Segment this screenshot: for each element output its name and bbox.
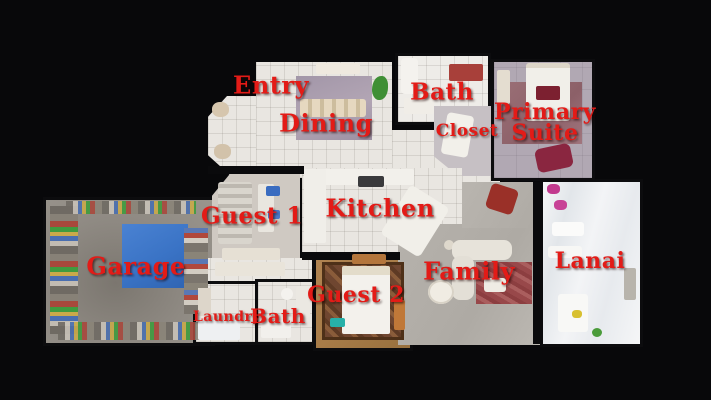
entry-chair <box>214 144 231 159</box>
room-label-kitchen: Kitchen <box>325 194 434 223</box>
garage-shelving <box>50 206 78 334</box>
floorplan-canvas: Entry Dining Bath Closet Primary Suite G… <box>0 0 711 400</box>
room-label-guest-1: Guest 1 <box>201 203 303 230</box>
room-label-family: Family <box>423 257 515 286</box>
garage-shelving <box>66 201 196 214</box>
guest2-dresser <box>352 254 386 264</box>
planter <box>624 268 636 300</box>
kitchen-counter <box>304 169 326 243</box>
room-label-dining: Dining <box>279 109 373 138</box>
pink-cushion <box>554 200 567 210</box>
room-label-garage: Garage <box>86 252 185 281</box>
garage-shelving <box>58 322 200 340</box>
room-label-guest-2: Guest 2 <box>307 282 405 308</box>
guest2-teal-item <box>330 318 345 327</box>
pink-cushion <box>547 184 560 194</box>
yellow-item <box>572 310 582 318</box>
wall-segment <box>533 182 543 344</box>
entry-chair <box>212 102 229 117</box>
red-throw-pillow <box>536 86 560 100</box>
potted-plant <box>592 328 602 337</box>
wall-segment <box>208 166 304 174</box>
hall-cabinet <box>215 262 285 276</box>
lounge-chair <box>552 222 584 236</box>
guest1-dresser <box>222 248 280 260</box>
room-label-bath-bottom: Bath <box>250 304 306 328</box>
toilet <box>281 288 293 300</box>
console-table <box>316 63 360 74</box>
kitchen-range <box>358 176 384 187</box>
room-label-bath-top: Bath <box>410 79 474 106</box>
room-label-primary-suite: Primary Suite <box>493 102 597 144</box>
room-label-entry: Entry <box>233 71 309 100</box>
room-label-lanai: Lanai <box>555 248 626 274</box>
guest1-blue-item <box>266 186 280 196</box>
room-label-closet: Closet <box>436 121 499 141</box>
